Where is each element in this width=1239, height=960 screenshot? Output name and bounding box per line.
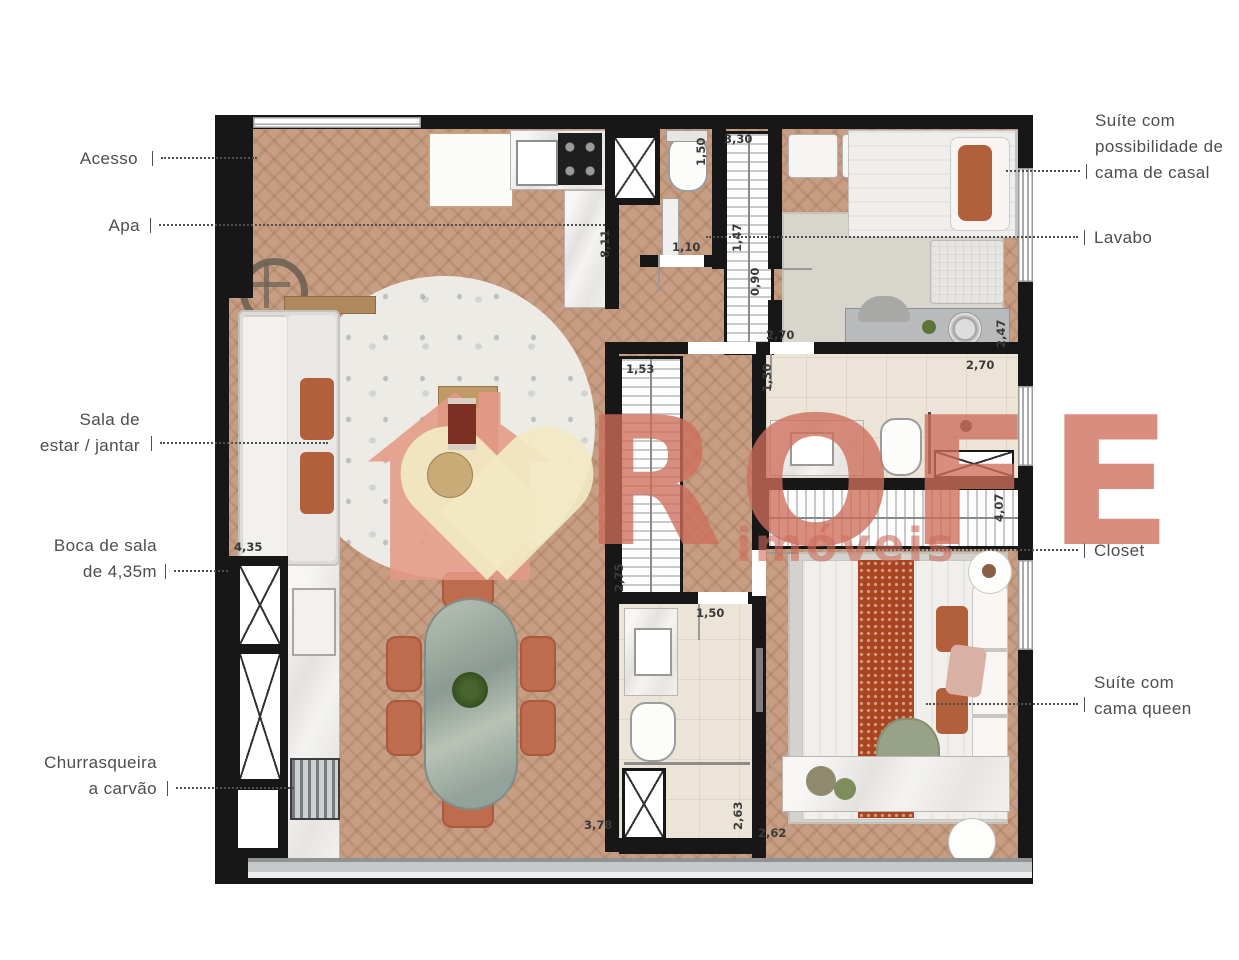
dining-chair — [520, 636, 556, 692]
leader-bar — [167, 781, 168, 796]
dimension-label: 1,10 — [672, 240, 700, 254]
leader-dots — [926, 703, 1078, 705]
lavabo-door-gap — [658, 255, 704, 267]
leader-dots — [1006, 170, 1080, 172]
vanity-round-mirror — [948, 312, 982, 346]
dining-chair — [386, 700, 422, 756]
wall-mirror — [756, 648, 763, 712]
leader-bar — [1084, 230, 1085, 245]
charcoal-grill — [290, 758, 340, 820]
lavabo-shaft — [613, 136, 657, 200]
bath2-door-gap — [698, 592, 748, 604]
brand-logo-heart-icon — [412, 430, 562, 568]
label-boca-de-sala: Boca de sala de 4,35m — [54, 533, 157, 585]
dimension-label: 0,90 — [748, 262, 762, 296]
dimension-label: 1,50 — [696, 606, 724, 620]
master-bath-door-gap — [770, 342, 814, 354]
wall-topleft-block — [215, 115, 253, 298]
bench-plant — [806, 766, 836, 796]
bathroom2-shaft — [622, 768, 666, 840]
leader-bar — [152, 151, 153, 166]
wall-mid-horizontal — [605, 342, 1033, 354]
sofa-back-cushions — [243, 315, 287, 561]
dimension-label: 2,70 — [766, 328, 794, 342]
dimension-label: 4,35 — [234, 540, 262, 554]
sofa-pillow — [300, 378, 334, 440]
corridor-opening — [688, 342, 756, 354]
leader-bar — [151, 436, 152, 451]
dimension-label: 2,47 — [994, 312, 1008, 348]
suite1-door-leaf — [782, 268, 812, 270]
dimension-label: 2,62 — [758, 826, 786, 840]
bathroom2-sink — [634, 628, 672, 676]
suite1-pouf — [788, 134, 838, 178]
dimension-label: 3,30 — [724, 132, 752, 146]
leader-dots — [176, 787, 294, 789]
wall-lavabo-right — [712, 129, 726, 269]
dimension-label: 3,78 — [584, 818, 612, 832]
label-suite-casal: Suíte com possibilidade de cama de casal — [1095, 108, 1223, 186]
bathroom2-shower-line — [624, 762, 750, 765]
kitchen-cabinet — [428, 132, 514, 208]
dimension-label: 1,53 — [626, 362, 654, 376]
suite1-armchair — [930, 240, 1004, 304]
wall-bath2-bottom — [619, 838, 766, 854]
label-acesso: Acesso — [80, 146, 138, 172]
dining-chair — [520, 700, 556, 756]
table-centerpiece-plant — [452, 672, 488, 708]
dimension-label: 8,11 — [598, 222, 612, 258]
stove — [558, 133, 602, 185]
dining-chair — [386, 636, 422, 692]
leader-dots — [159, 224, 605, 226]
leader-bar — [1086, 164, 1087, 179]
vanity-plant — [922, 320, 936, 334]
left-shaft — [238, 564, 282, 646]
label-lavabo: Lavabo — [1094, 225, 1152, 251]
balcony-rail — [248, 858, 1032, 878]
watermark-brand-subtitle: imóveis — [736, 518, 957, 572]
left-shaft-plain — [238, 790, 278, 848]
wall-suite1-left-upper — [768, 129, 782, 269]
dimension-label: 2,63 — [731, 796, 745, 830]
dimension-label: 1,47 — [730, 218, 744, 252]
counter-sink — [292, 588, 336, 656]
leader-dots — [174, 570, 228, 572]
leader-bar — [165, 564, 166, 579]
dimension-label: 2,70 — [966, 358, 994, 372]
tv-screen — [448, 398, 476, 450]
suite1-bed-pillow-orange — [958, 145, 992, 221]
floor-plan-canvas: 1,50 3,30 8,11 1,47 1,10 0,90 2,70 2,47 … — [0, 0, 1239, 960]
leader-dots — [160, 442, 328, 444]
lavabo-door-leaf — [658, 255, 660, 291]
leader-bar — [1084, 697, 1085, 712]
leader-dots — [706, 236, 1078, 238]
sofa-pillow — [300, 452, 334, 514]
bathroom2-toilet — [630, 702, 676, 762]
suite1-window — [1018, 168, 1033, 282]
kitchen-sink — [516, 140, 558, 186]
round-stool — [427, 452, 473, 498]
queen-pillow-pink — [945, 644, 988, 699]
entry-door — [253, 117, 421, 128]
leader-dots — [161, 157, 257, 159]
label-sala-estar-jantar: Sala de estar / jantar — [40, 407, 140, 459]
leader-bar — [150, 218, 151, 233]
dimension-label: 1,50 — [694, 132, 708, 166]
label-churrasqueira: Churrasqueira a carvão — [44, 750, 157, 802]
label-apa: Apa — [109, 213, 140, 239]
bench-plant — [834, 778, 856, 800]
label-suite-queen: Suíte com cama queen — [1094, 670, 1192, 722]
left-shaft — [238, 652, 282, 781]
